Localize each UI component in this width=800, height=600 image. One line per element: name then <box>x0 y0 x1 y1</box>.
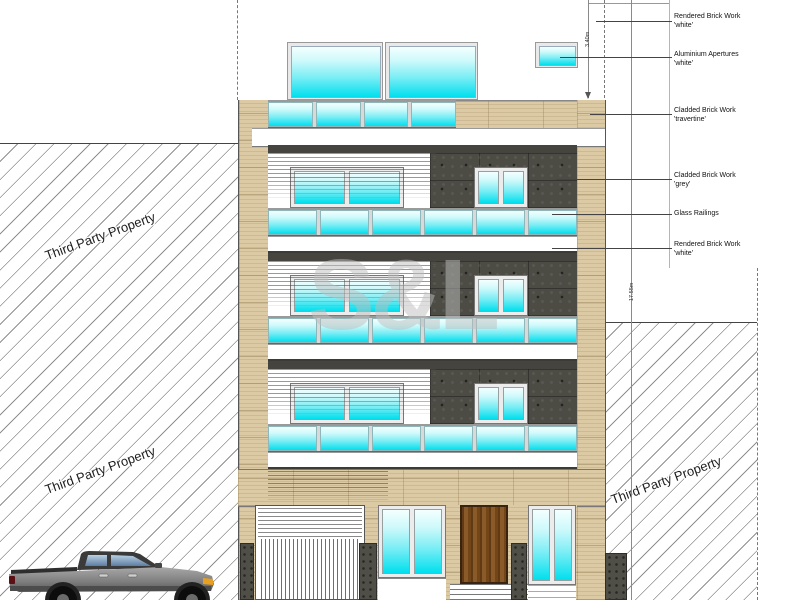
dimension-arrow <box>585 92 591 99</box>
truck-headlight <box>203 578 213 585</box>
railing-panel <box>320 210 369 235</box>
railing-panel <box>268 102 313 127</box>
annotation-cladded-grey: Cladded Brick Work 'grey' <box>674 171 796 189</box>
pickup-truck <box>7 550 219 600</box>
railing-panel <box>476 318 525 343</box>
railing-panel <box>476 210 525 235</box>
window-pane <box>349 279 400 312</box>
floor-1 <box>268 361 577 469</box>
annotation-glass-railings: Glass Railings <box>674 209 796 218</box>
annotation-variant: 'travertine' <box>674 115 796 124</box>
annotation-label: Rendered Brick Work <box>674 12 796 21</box>
ground-pillar-3 <box>511 543 527 600</box>
annotation-label: Aluminium Apertures <box>674 50 796 59</box>
window-pane <box>532 509 550 581</box>
roof-glass-panel-1 <box>287 42 383 100</box>
railing-panel <box>372 318 421 343</box>
railing-panel <box>320 426 369 451</box>
balcony-slab <box>268 344 577 361</box>
railing-panel <box>424 318 473 343</box>
balcony-glass-railing <box>268 208 577 236</box>
window-pane <box>414 509 442 574</box>
roof-small-window-glass <box>539 46 576 66</box>
window-right <box>474 275 528 316</box>
railing-panel <box>268 210 317 235</box>
garage-door <box>255 505 365 600</box>
slab-soffit <box>268 145 577 153</box>
railing-panel <box>372 210 421 235</box>
leader-line <box>556 179 672 180</box>
boundary-line-right <box>604 0 605 98</box>
railing-panel <box>424 426 473 451</box>
roof-glass-panel-2 <box>385 42 478 100</box>
railing-panel <box>268 426 317 451</box>
slab-soffit <box>268 361 577 369</box>
garage-door-slats <box>261 539 359 599</box>
annotation-label: Glass Railings <box>674 209 796 218</box>
railing-panel <box>424 210 473 235</box>
window-pane <box>503 279 524 312</box>
window-pane <box>478 387 499 420</box>
window-pane <box>478 171 499 204</box>
annotation-rendered-brick-bottom: Rendered Brick Work 'white' <box>674 240 796 258</box>
ground-window-right <box>528 505 576 585</box>
roof-glass-1 <box>291 46 381 98</box>
dimension-line-parapet <box>588 0 589 98</box>
window-pane <box>349 387 400 420</box>
window-left <box>290 383 404 424</box>
parapet-glass-railing <box>268 100 456 128</box>
railing-panel <box>268 318 317 343</box>
garage-door-header <box>258 508 362 539</box>
entrance-door <box>460 505 508 584</box>
annotation-aluminium-apertures: Aluminium Apertures 'white' <box>674 50 796 68</box>
annotation-variant: 'white' <box>674 249 796 258</box>
window-pane <box>554 509 572 581</box>
railing-panel <box>372 426 421 451</box>
ground-pillar-2 <box>359 543 377 600</box>
elevation-drawing: Third Party Property Third Party Propert… <box>0 0 800 600</box>
annotation-label: Cladded Brick Work <box>674 106 796 115</box>
floor-3 <box>268 145 577 253</box>
annotation-variant: 'grey' <box>674 180 796 189</box>
roof-glass-2 <box>389 46 476 98</box>
window-left <box>290 275 404 316</box>
boundary-line-far-right <box>757 268 758 600</box>
boundary-wall-block <box>605 553 627 600</box>
window-pane <box>349 171 400 204</box>
truck-door-handle-2 <box>128 574 137 577</box>
window-pane <box>503 171 524 204</box>
window-pane <box>503 387 524 420</box>
truck-mirror <box>155 563 162 568</box>
leader-line <box>590 114 672 115</box>
ground-travertine-band <box>238 469 605 507</box>
ground-window-right-sill <box>528 585 576 600</box>
window-pane <box>294 171 345 204</box>
right-pier <box>577 100 606 600</box>
roof-small-window <box>535 42 578 68</box>
window-pane <box>294 387 345 420</box>
leader-line <box>552 248 672 249</box>
window-left <box>290 167 404 208</box>
third-party-property-left <box>0 143 238 600</box>
annotation-variant: 'white' <box>674 59 796 68</box>
dimension-tick-top <box>588 3 670 4</box>
balcony-glass-railing <box>268 424 577 452</box>
balcony-glass-railing <box>268 316 577 344</box>
railing-panel <box>528 318 577 343</box>
railing-panel <box>411 102 456 127</box>
window-right <box>474 167 528 208</box>
truck-taillight <box>9 576 15 584</box>
railing-panel <box>364 102 409 127</box>
leader-line <box>552 214 672 215</box>
truck-door-handle-1 <box>99 574 108 577</box>
ground-window-left-sill <box>378 578 446 600</box>
balcony-slab <box>268 452 577 469</box>
truck-rear-window <box>85 555 107 566</box>
dimension-text-parapet: 3.40m <box>585 19 591 47</box>
ground-window-left <box>378 505 446 578</box>
slab-soffit <box>268 253 577 261</box>
floor-2 <box>268 253 577 361</box>
railing-panel <box>476 426 525 451</box>
third-party-property-right <box>605 322 757 600</box>
railing-panel <box>528 426 577 451</box>
dimension-text-total: 17.55m <box>629 269 635 301</box>
extension-line <box>669 0 670 268</box>
leader-line <box>560 57 672 58</box>
railing-panel <box>320 318 369 343</box>
annotation-label: Cladded Brick Work <box>674 171 796 180</box>
window-pane <box>478 279 499 312</box>
balcony-slab <box>268 236 577 253</box>
annotation-rendered-brick-top: Rendered Brick Work 'white' <box>674 12 796 30</box>
window-pane <box>294 279 345 312</box>
ground-pillar-1 <box>240 543 254 600</box>
boundary-line-left <box>237 0 238 100</box>
window-pane <box>382 509 410 574</box>
annotation-cladded-travertine: Cladded Brick Work 'travertine' <box>674 106 796 124</box>
leader-line <box>596 21 672 22</box>
annotation-label: Rendered Brick Work <box>674 240 796 249</box>
annotation-variant: 'white' <box>674 21 796 30</box>
window-right <box>474 383 528 424</box>
railing-panel <box>316 102 361 127</box>
